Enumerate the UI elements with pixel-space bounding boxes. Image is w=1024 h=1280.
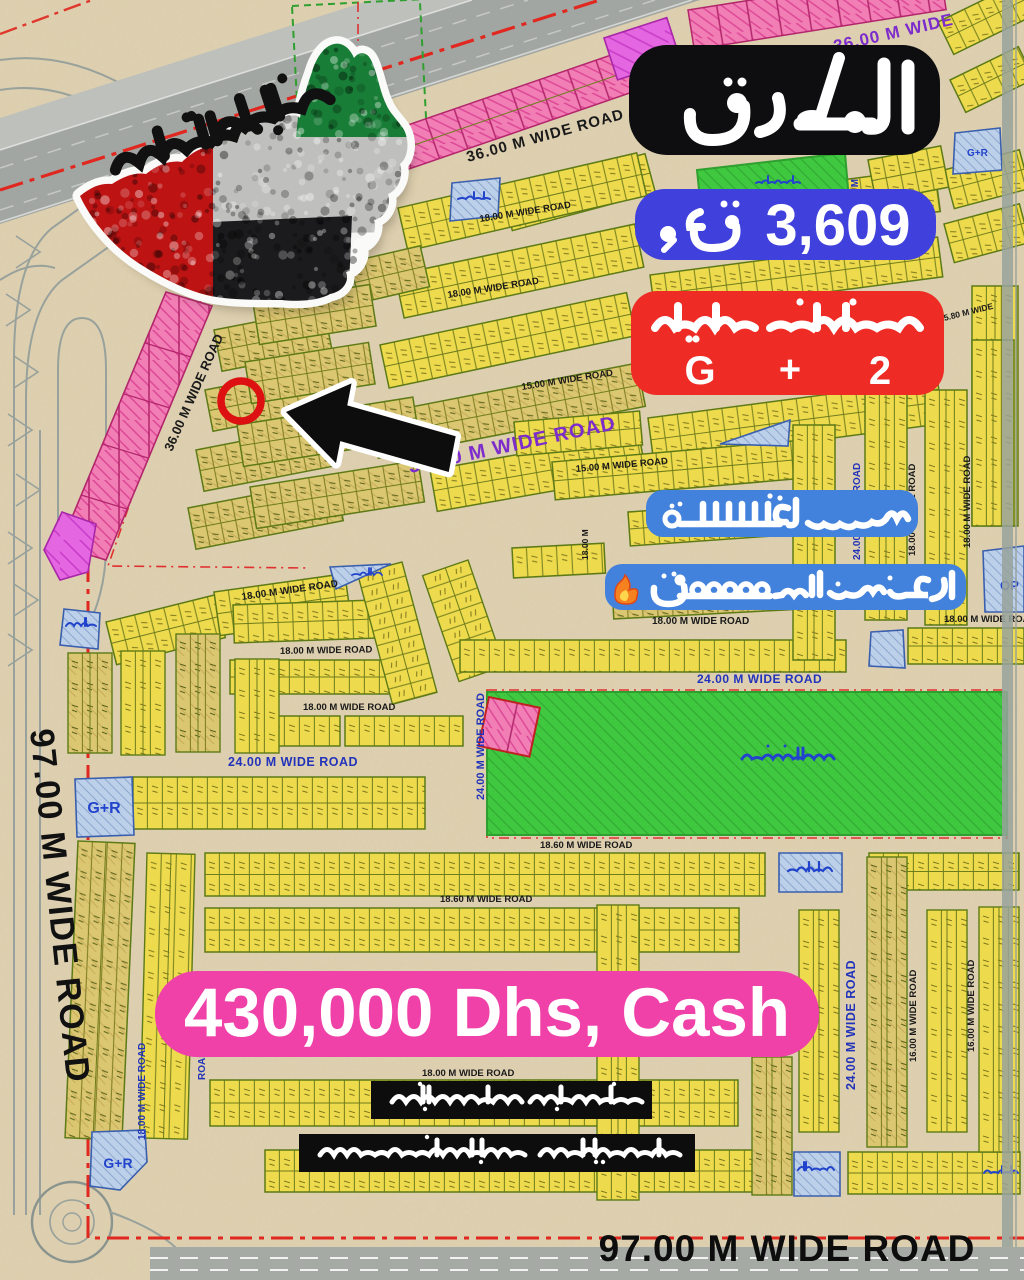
- svg-text:G+R: G+R: [87, 800, 121, 817]
- svg-text:G+R: G+R: [103, 1155, 132, 1171]
- svg-text:430,000 Dhs, Cash: 430,000 Dhs, Cash: [184, 974, 790, 1051]
- svg-text:18.00 M WIDE ROAD: 18.00 M WIDE ROAD: [303, 702, 396, 713]
- svg-text:97.00 M WIDE ROAD: 97.00 M WIDE ROAD: [599, 1228, 976, 1269]
- svg-text:24.00 M WIDE ROAD: 24.00 M WIDE ROAD: [844, 960, 858, 1090]
- svg-text:G+R: G+R: [967, 148, 989, 159]
- svg-text:18.00 M WIDE ROAD: 18.00 M WIDE ROAD: [280, 644, 373, 657]
- svg-text:16.00 M WIDE ROAD: 16.00 M WIDE ROAD: [966, 959, 977, 1052]
- svg-text:18.00 M WIDE ROAD: 18.00 M WIDE ROAD: [422, 1068, 515, 1079]
- svg-text:+: +: [779, 349, 801, 391]
- svg-text:18.60 M WIDE ROAD: 18.60 M WIDE ROAD: [440, 894, 533, 905]
- svg-text:24.00 M WIDE ROAD: 24.00 M WIDE ROAD: [697, 672, 822, 686]
- svg-text:24.00 M WIDE ROAD: 24.00 M WIDE ROAD: [475, 693, 487, 800]
- svg-text:3,609: 3,609: [765, 193, 910, 258]
- svg-text:18.00 M WIDE ROAD: 18.00 M WIDE ROAD: [137, 1043, 148, 1140]
- svg-text:18.00 M: 18.00 M: [580, 529, 590, 560]
- svg-text:18.00 M WIDE ROAD: 18.00 M WIDE ROAD: [652, 616, 749, 627]
- svg-text:18.00 M WIDE ROAD: 18.00 M WIDE ROAD: [962, 455, 973, 548]
- svg-text:24.00 M WIDE ROAD: 24.00 M WIDE ROAD: [228, 755, 358, 769]
- svg-text:16.00 M WIDE ROAD: 16.00 M WIDE ROAD: [908, 969, 919, 1062]
- svg-text:2: 2: [869, 349, 891, 393]
- svg-text:G: G: [684, 349, 715, 393]
- svg-text:18.60 M WIDE ROAD: 18.60 M WIDE ROAD: [540, 840, 633, 851]
